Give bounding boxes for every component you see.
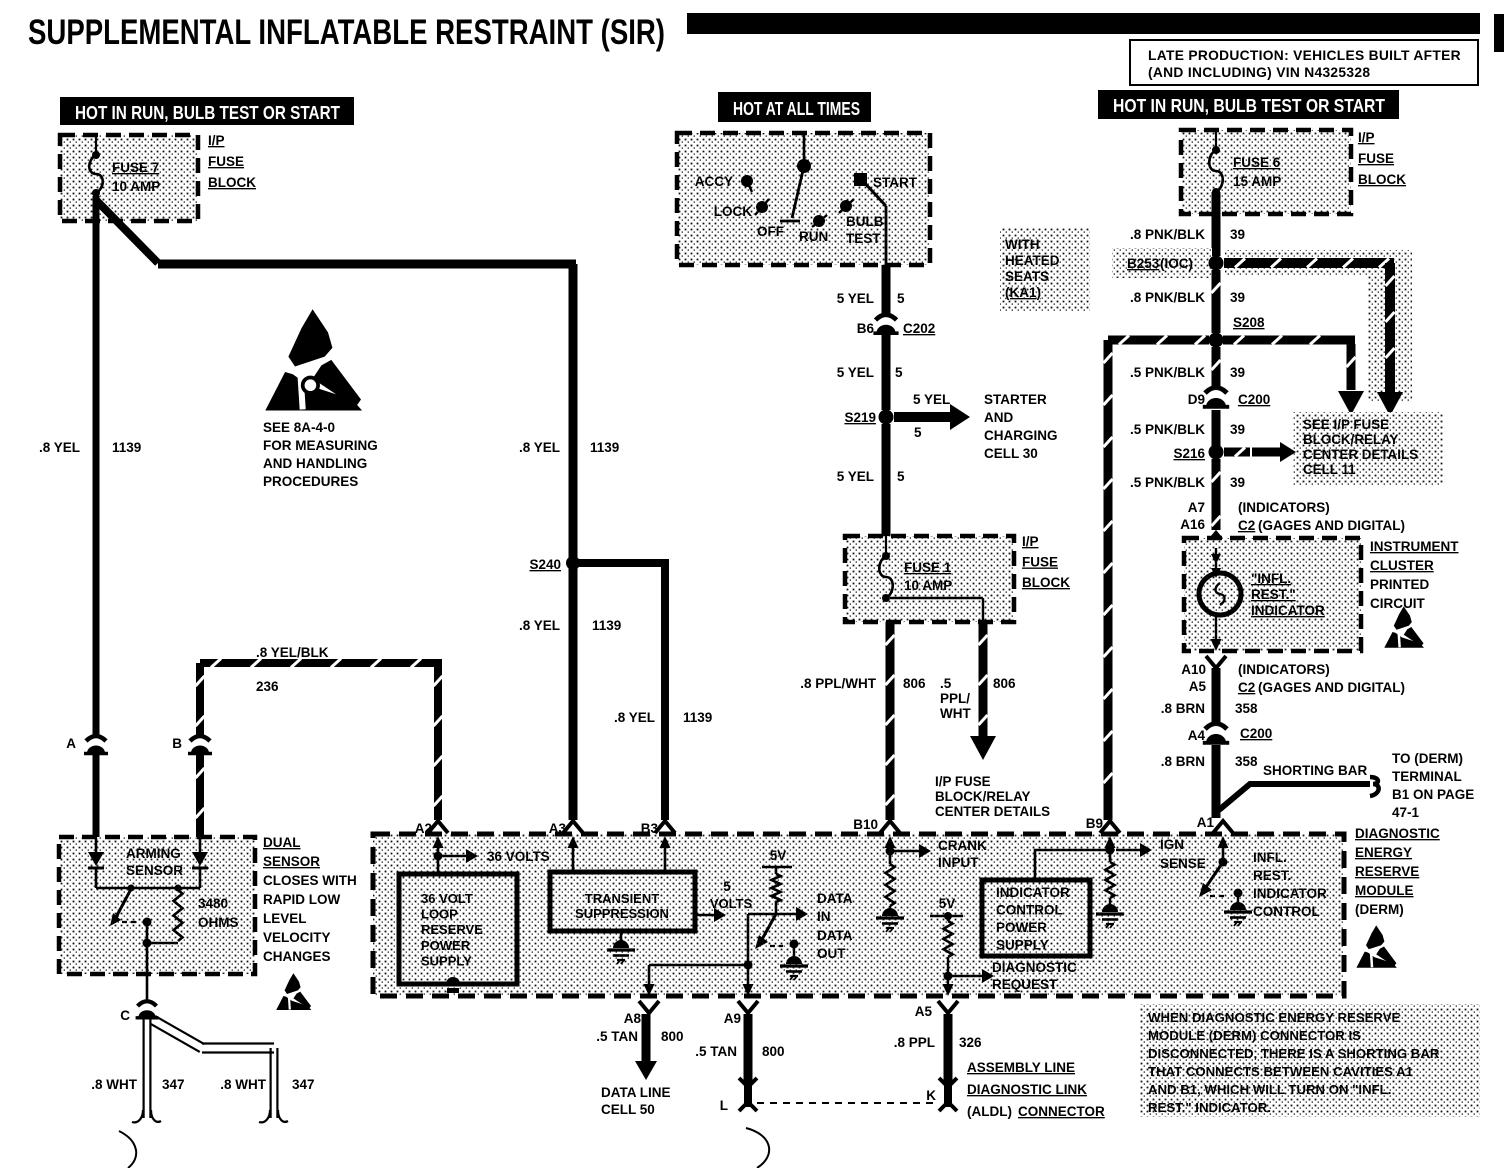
svg-text:A: A xyxy=(66,736,76,751)
svg-text:REST.": REST." xyxy=(1251,587,1296,602)
svg-text:START: START xyxy=(873,175,918,190)
svg-text:REST.: REST. xyxy=(1253,868,1291,883)
svg-text:IGN: IGN xyxy=(1160,837,1184,852)
svg-text:FUSE: FUSE xyxy=(1358,151,1394,166)
svg-text:A16: A16 xyxy=(1180,517,1205,532)
svg-text:FUSE 6: FUSE 6 xyxy=(1233,155,1281,170)
svg-text:THAT CONNECTS BETWEEN CAVITIES: THAT CONNECTS BETWEEN CAVITIES A1 xyxy=(1148,1064,1413,1079)
svg-text:C2: C2 xyxy=(1238,680,1255,695)
svg-text:DUAL: DUAL xyxy=(263,835,301,850)
svg-text:SENSOR: SENSOR xyxy=(126,863,183,878)
svg-text:INDICATOR: INDICATOR xyxy=(1253,886,1327,901)
svg-text:.5 PNK/BLK: .5 PNK/BLK xyxy=(1130,422,1205,437)
svg-text:3480: 3480 xyxy=(198,896,228,911)
svg-text:5V: 5V xyxy=(939,896,956,911)
svg-text:A10: A10 xyxy=(1181,662,1206,677)
svg-text:B9: B9 xyxy=(1086,816,1103,831)
svg-text:SUPPLY: SUPPLY xyxy=(996,938,1049,953)
svg-text:39: 39 xyxy=(1230,227,1245,242)
svg-text:INDICATOR: INDICATOR xyxy=(1251,603,1325,618)
svg-text:C202: C202 xyxy=(903,321,935,336)
svg-text:A5: A5 xyxy=(1189,679,1207,694)
svg-text:(AND INCLUDING) VIN N4325328: (AND INCLUDING) VIN N4325328 xyxy=(1148,65,1370,80)
svg-text:CLOSES WITH: CLOSES WITH xyxy=(263,873,357,888)
svg-text:CONNECTOR: CONNECTOR xyxy=(1018,1104,1105,1119)
svg-text:I/P: I/P xyxy=(208,133,225,148)
svg-text:K: K xyxy=(926,1088,936,1103)
svg-text:SEATS: SEATS xyxy=(1005,269,1049,284)
svg-text:B: B xyxy=(172,736,182,751)
svg-text:B1 ON PAGE: B1 ON PAGE xyxy=(1392,787,1474,802)
svg-text:HOT IN RUN, BULB TEST OR START: HOT IN RUN, BULB TEST OR START xyxy=(75,102,341,123)
svg-text:S240: S240 xyxy=(529,557,561,572)
svg-text:5: 5 xyxy=(895,365,903,380)
svg-text:SEE 8A-4-0: SEE 8A-4-0 xyxy=(263,420,335,435)
svg-text:MODULE (DERM) CONNECTOR IS: MODULE (DERM) CONNECTOR IS xyxy=(1148,1028,1361,1043)
svg-text:LOOP: LOOP xyxy=(421,907,458,922)
svg-text:A3: A3 xyxy=(549,821,567,836)
svg-text:POWER: POWER xyxy=(421,938,471,953)
svg-text:LEVEL: LEVEL xyxy=(263,911,307,926)
svg-text:5: 5 xyxy=(897,291,905,306)
svg-text:(IOC): (IOC) xyxy=(1160,256,1193,271)
svg-text:(KA1): (KA1) xyxy=(1005,285,1041,300)
svg-text:36 VOLTS: 36 VOLTS xyxy=(487,849,550,864)
svg-text:INFL.: INFL. xyxy=(1253,850,1287,865)
svg-text:FOR MEASURING: FOR MEASURING xyxy=(263,438,378,453)
svg-text:FUSE 1: FUSE 1 xyxy=(904,560,952,575)
svg-text:SUPPRESSION: SUPPRESSION xyxy=(575,906,669,921)
svg-text:800: 800 xyxy=(762,1044,785,1059)
svg-text:RUN: RUN xyxy=(799,229,828,244)
svg-text:5 YEL: 5 YEL xyxy=(837,365,874,380)
svg-text:CLUSTER: CLUSTER xyxy=(1370,558,1434,573)
svg-text:AND B1, WHICH WILL TURN ON "IN: AND B1, WHICH WILL TURN ON "INFL. xyxy=(1148,1082,1391,1097)
svg-text:.8 PNK/BLK: .8 PNK/BLK xyxy=(1130,227,1205,242)
svg-text:DATA LINE: DATA LINE xyxy=(601,1085,671,1100)
svg-text:.8 PPL: .8 PPL xyxy=(894,1035,935,1050)
svg-text:AND: AND xyxy=(984,410,1013,425)
svg-text:INPUT: INPUT xyxy=(938,855,979,870)
svg-text:B10: B10 xyxy=(853,817,878,832)
svg-text:SEE I/P FUSE: SEE I/P FUSE xyxy=(1303,417,1389,432)
svg-text:CENTER DETAILS: CENTER DETAILS xyxy=(1303,447,1418,462)
svg-text:TRANSIENT: TRANSIENT xyxy=(585,891,659,906)
svg-text:1139: 1139 xyxy=(683,710,712,725)
svg-text:DIAGNOSTIC LINK: DIAGNOSTIC LINK xyxy=(967,1082,1087,1097)
svg-text:I/P: I/P xyxy=(1358,130,1375,145)
svg-text:5 YEL: 5 YEL xyxy=(913,392,950,407)
svg-text:SHORTING BAR: SHORTING BAR xyxy=(1263,763,1368,778)
svg-text:SUPPLY: SUPPLY xyxy=(421,953,472,968)
svg-text:S219: S219 xyxy=(844,410,876,425)
svg-text:(INDICATORS): (INDICATORS) xyxy=(1238,500,1330,515)
svg-text:15 AMP: 15 AMP xyxy=(1233,174,1281,189)
svg-text:HEATED: HEATED xyxy=(1005,253,1060,268)
svg-text:REST." INDICATOR.: REST." INDICATOR. xyxy=(1148,1100,1271,1115)
svg-text:CELL 11: CELL 11 xyxy=(1303,462,1356,477)
svg-text:DISCONNECTED, THERE IS A SHORT: DISCONNECTED, THERE IS A SHORTING BAR xyxy=(1148,1046,1440,1061)
svg-text:36 VOLT: 36 VOLT xyxy=(421,891,473,906)
svg-text:OFF: OFF xyxy=(757,224,784,239)
svg-text:(GAGES AND DIGITAL): (GAGES AND DIGITAL) xyxy=(1258,518,1405,533)
svg-text:A5: A5 xyxy=(915,1004,933,1019)
svg-text:S208: S208 xyxy=(1233,315,1265,330)
svg-text:B3: B3 xyxy=(641,821,659,836)
svg-text:FUSE 7: FUSE 7 xyxy=(112,160,159,175)
svg-text:RESERVE: RESERVE xyxy=(421,922,483,937)
svg-text:BLOCK: BLOCK xyxy=(1022,575,1070,590)
svg-text:5: 5 xyxy=(897,469,905,484)
svg-text:358: 358 xyxy=(1235,701,1258,716)
svg-text:INDICATOR: INDICATOR xyxy=(996,885,1070,900)
svg-text:I/P: I/P xyxy=(1022,534,1039,549)
svg-text:CENTER DETAILS: CENTER DETAILS xyxy=(935,804,1050,819)
svg-text:.8 PPL/WHT: .8 PPL/WHT xyxy=(800,676,877,691)
svg-text:VELOCITY: VELOCITY xyxy=(263,930,331,945)
svg-text:A1: A1 xyxy=(1197,815,1215,830)
svg-text:.8 BRN: .8 BRN xyxy=(1161,701,1205,716)
svg-text:.8 BRN: .8 BRN xyxy=(1161,754,1205,769)
svg-text:CELL 50: CELL 50 xyxy=(601,1102,655,1117)
svg-text:RESERVE: RESERVE xyxy=(1355,864,1419,879)
svg-text:.5 PNK/BLK: .5 PNK/BLK xyxy=(1130,475,1205,490)
svg-text:A4: A4 xyxy=(1188,728,1206,743)
svg-text:CELL 30: CELL 30 xyxy=(984,446,1038,461)
svg-text:1139: 1139 xyxy=(592,618,621,633)
svg-text:806: 806 xyxy=(903,676,926,691)
svg-text:ARMING: ARMING xyxy=(126,846,181,861)
svg-text:236: 236 xyxy=(256,679,279,694)
svg-text:ENERGY: ENERGY xyxy=(1355,845,1412,860)
svg-text:.8 YEL/BLK: .8 YEL/BLK xyxy=(256,645,329,660)
svg-text:PPL/: PPL/ xyxy=(940,691,970,706)
svg-text:SENSOR: SENSOR xyxy=(263,854,320,869)
svg-text:L: L xyxy=(720,1098,728,1113)
svg-text:PRINTED: PRINTED xyxy=(1370,577,1430,592)
svg-text:PROCEDURES: PROCEDURES xyxy=(263,474,358,489)
svg-text:.5: .5 xyxy=(940,676,952,691)
svg-text:B6: B6 xyxy=(857,321,875,336)
svg-text:806: 806 xyxy=(993,676,1016,691)
svg-text:5: 5 xyxy=(723,879,731,894)
svg-text:TEST: TEST xyxy=(846,231,881,246)
svg-text:800: 800 xyxy=(661,1029,684,1044)
svg-text:AND HANDLING: AND HANDLING xyxy=(263,456,367,471)
svg-text:.8 YEL: .8 YEL xyxy=(39,440,80,455)
svg-text:39: 39 xyxy=(1230,422,1245,437)
svg-text:RAPID LOW: RAPID LOW xyxy=(263,892,341,907)
svg-text:C200: C200 xyxy=(1240,726,1272,741)
svg-text:CRANK: CRANK xyxy=(938,838,987,853)
svg-text:OUT: OUT xyxy=(817,946,846,961)
svg-text:BLOCK/RELAY: BLOCK/RELAY xyxy=(935,789,1031,804)
svg-text:TERMINAL: TERMINAL xyxy=(1392,769,1462,784)
svg-text:(GAGES AND DIGITAL): (GAGES AND DIGITAL) xyxy=(1258,680,1405,695)
svg-text:DIAGNOSTIC: DIAGNOSTIC xyxy=(992,960,1077,975)
svg-text:BLOCK: BLOCK xyxy=(208,175,256,190)
svg-text:5 YEL: 5 YEL xyxy=(837,469,874,484)
svg-text:(INDICATORS): (INDICATORS) xyxy=(1238,662,1330,677)
svg-text:STARTER: STARTER xyxy=(984,392,1047,407)
svg-text:S216: S216 xyxy=(1173,446,1205,461)
svg-text:(ALDL): (ALDL) xyxy=(967,1104,1012,1119)
svg-text:LATE PRODUCTION: VEHICLES BUIL: LATE PRODUCTION: VEHICLES BUILT AFTER xyxy=(1148,48,1461,63)
svg-text:REQUEST: REQUEST xyxy=(992,977,1058,992)
svg-text:A7: A7 xyxy=(1188,500,1205,515)
svg-text:(DERM): (DERM) xyxy=(1355,902,1404,917)
svg-text:.8 PNK/BLK: .8 PNK/BLK xyxy=(1130,290,1205,305)
svg-text:BULB: BULB xyxy=(846,214,884,229)
svg-text:WITH: WITH xyxy=(1005,237,1040,252)
svg-text:39: 39 xyxy=(1230,365,1245,380)
svg-text:CONTROL: CONTROL xyxy=(996,903,1063,918)
svg-text:D9: D9 xyxy=(1188,392,1205,407)
svg-text:FUSE: FUSE xyxy=(1022,555,1058,570)
svg-text:39: 39 xyxy=(1230,290,1245,305)
svg-text:BLOCK: BLOCK xyxy=(1358,172,1406,187)
svg-text:326: 326 xyxy=(959,1035,982,1050)
svg-text:39: 39 xyxy=(1230,475,1245,490)
svg-text:BLOCK/RELAY: BLOCK/RELAY xyxy=(1303,432,1399,447)
svg-text:5 YEL: 5 YEL xyxy=(837,291,874,306)
svg-text:I/P FUSE: I/P FUSE xyxy=(935,774,991,789)
svg-text:INSTRUMENT: INSTRUMENT xyxy=(1370,539,1459,554)
svg-text:.8 WHT: .8 WHT xyxy=(91,1077,138,1092)
svg-text:347: 347 xyxy=(162,1077,185,1092)
svg-text:IN: IN xyxy=(817,909,831,924)
svg-text:358: 358 xyxy=(1235,754,1258,769)
svg-text:DIAGNOSTIC: DIAGNOSTIC xyxy=(1355,826,1440,841)
svg-text:10 AMP: 10 AMP xyxy=(904,578,952,593)
svg-text:TO (DERM): TO (DERM) xyxy=(1392,751,1463,766)
svg-text:47-1: 47-1 xyxy=(1392,805,1420,820)
svg-text:ACCY: ACCY xyxy=(695,174,733,189)
svg-text:DATA: DATA xyxy=(817,928,853,943)
svg-text:.8 WHT: .8 WHT xyxy=(220,1077,267,1092)
svg-text:1139: 1139 xyxy=(112,440,141,455)
svg-text:1139: 1139 xyxy=(590,440,619,455)
svg-text:SENSE: SENSE xyxy=(1160,856,1206,871)
svg-text:OHMS: OHMS xyxy=(198,915,239,930)
svg-text:FUSE: FUSE xyxy=(208,154,244,169)
svg-text:5: 5 xyxy=(914,425,922,440)
svg-text:.8 YEL: .8 YEL xyxy=(519,618,560,633)
svg-text:A2: A2 xyxy=(415,821,432,836)
svg-text:.5 TAN: .5 TAN xyxy=(695,1044,737,1059)
svg-text:.8 YEL: .8 YEL xyxy=(614,710,655,725)
svg-text:SUPPLEMENTAL INFLATABLE RESTRA: SUPPLEMENTAL INFLATABLE RESTRAINT (SIR) xyxy=(28,13,665,52)
svg-text:CIRCUIT: CIRCUIT xyxy=(1370,596,1425,611)
svg-text:LOCK: LOCK xyxy=(714,204,752,219)
svg-text:5V: 5V xyxy=(770,848,787,863)
svg-text:WHT: WHT xyxy=(940,706,971,721)
svg-text:A8: A8 xyxy=(624,1011,642,1026)
svg-text:DATA: DATA xyxy=(817,891,853,906)
svg-text:HOT AT ALL TIMES: HOT AT ALL TIMES xyxy=(733,98,860,119)
svg-text:WHEN DIAGNOSTIC ENERGY RESERVE: WHEN DIAGNOSTIC ENERGY RESERVE xyxy=(1148,1010,1401,1025)
svg-text:MODULE: MODULE xyxy=(1355,883,1414,898)
svg-text:C200: C200 xyxy=(1238,392,1270,407)
svg-text:A9: A9 xyxy=(724,1011,741,1026)
svg-text:.5 TAN: .5 TAN xyxy=(596,1029,638,1044)
svg-text:CHARGING: CHARGING xyxy=(984,428,1058,443)
svg-text:POWER: POWER xyxy=(996,920,1047,935)
svg-text:.8 YEL: .8 YEL xyxy=(519,440,560,455)
svg-text:.5 PNK/BLK: .5 PNK/BLK xyxy=(1130,365,1205,380)
svg-text:CHANGES: CHANGES xyxy=(263,949,331,964)
svg-text:C: C xyxy=(120,1008,130,1023)
svg-text:347: 347 xyxy=(292,1077,315,1092)
svg-text:"INFL.: "INFL. xyxy=(1251,571,1291,586)
svg-text:B253: B253 xyxy=(1127,256,1160,271)
svg-text:C2: C2 xyxy=(1238,518,1255,533)
svg-text:HOT IN RUN, BULB TEST OR START: HOT IN RUN, BULB TEST OR START xyxy=(1113,95,1386,116)
svg-text:10 AMP: 10 AMP xyxy=(112,179,160,194)
svg-text:VOLTS: VOLTS xyxy=(710,896,753,911)
svg-text:CONTROL: CONTROL xyxy=(1253,904,1320,919)
svg-text:ASSEMBLY LINE: ASSEMBLY LINE xyxy=(967,1060,1075,1075)
